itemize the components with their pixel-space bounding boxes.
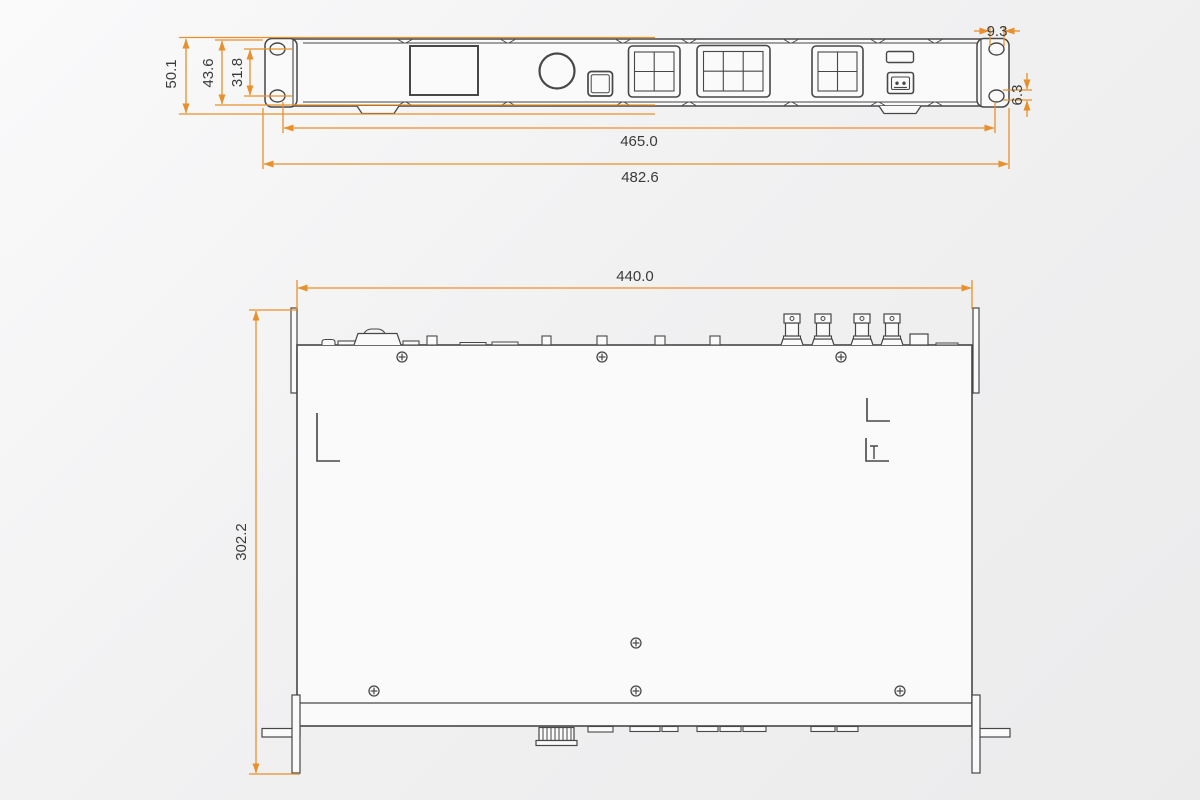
lcd-screen <box>410 46 478 95</box>
usb-port-icon <box>888 73 914 94</box>
power-inlet <box>354 334 401 346</box>
dim-total-width: 482.6 <box>621 169 659 186</box>
drawing-canvas: 50.1 43.6 31.8 9.3 6.3 465.0 <box>0 0 1200 800</box>
technical-drawing-page: 50.1 43.6 31.8 9.3 6.3 465.0 <box>0 0 1200 800</box>
rear-post-5 <box>710 336 720 345</box>
knob-profile <box>539 728 574 741</box>
button-profile <box>630 727 660 732</box>
screw-icon <box>597 352 607 362</box>
button-grid-3x2 <box>697 46 770 98</box>
screw-icon <box>397 352 407 362</box>
button-profile <box>662 727 678 732</box>
knob-profile-base <box>536 741 577 746</box>
rear-connectors <box>322 314 958 345</box>
rack-ear-right <box>977 39 1009 108</box>
dim-top-depth: 302.2 <box>233 523 250 561</box>
bottom-ear-right <box>972 695 1010 773</box>
rear-post-3 <box>597 336 607 345</box>
card-slot <box>887 52 914 63</box>
rear-box-connector <box>910 334 928 345</box>
front-edge-items <box>536 727 858 746</box>
bnc-connector-1 <box>781 314 803 345</box>
ear-strip-right <box>972 695 980 773</box>
rear-low-tab-1 <box>460 343 486 346</box>
rear-low-tab-3 <box>936 343 958 345</box>
screw-icon <box>631 686 641 696</box>
screw-icon <box>895 686 905 696</box>
bottom-ear-left <box>262 695 300 773</box>
chassis-top-outline <box>297 345 972 726</box>
rear-post-1 <box>427 336 437 345</box>
foot-left <box>357 106 399 114</box>
rear-post-2 <box>542 336 551 345</box>
dim-total-height: 50.1 <box>163 59 180 88</box>
mounting-slot-bottom-right <box>989 90 1004 102</box>
dim-slot-width: 9.3 <box>987 23 1008 40</box>
rear-post-4 <box>655 336 665 345</box>
screw-icon <box>369 686 379 696</box>
foot-right <box>879 106 921 114</box>
bnc-connector-3 <box>851 314 873 345</box>
button-profile <box>697 727 718 732</box>
button-profile <box>720 727 741 732</box>
rear-tab-1 <box>338 341 356 345</box>
button-grid-2x2-left <box>629 46 681 97</box>
screw-icon <box>631 638 641 648</box>
button-profile <box>837 727 858 732</box>
dim-hole-spacing: 31.8 <box>229 58 246 87</box>
ear-strip-left <box>292 695 300 773</box>
button-profile <box>588 727 613 733</box>
mounting-slot-top-right <box>989 43 1004 55</box>
dim-slot-height: 6.3 <box>1009 85 1026 106</box>
rotary-knob <box>540 54 575 89</box>
power-inlet-top <box>364 329 385 334</box>
dim-panel-height: 43.6 <box>200 58 217 87</box>
bnc-connector-2 <box>812 314 834 345</box>
rear-low-tab-2 <box>492 342 518 345</box>
bnc-connector-4 <box>881 314 903 345</box>
dim-top-width: 440.0 <box>616 268 654 285</box>
dim-mounting-width: 465.0 <box>620 133 658 150</box>
side-rail-left <box>291 308 297 393</box>
screw-icon <box>836 352 846 362</box>
side-rail-right <box>973 308 979 393</box>
button-profile <box>811 727 835 732</box>
top-view: 440.0 302.2 <box>233 268 1010 774</box>
front-view: 50.1 43.6 31.8 9.3 6.3 465.0 <box>163 23 1032 186</box>
back-button <box>588 72 613 97</box>
rear-bump <box>322 340 335 346</box>
rear-tab-2 <box>403 341 419 345</box>
button-grid-2x2-right <box>812 46 863 97</box>
button-profile <box>743 727 766 732</box>
